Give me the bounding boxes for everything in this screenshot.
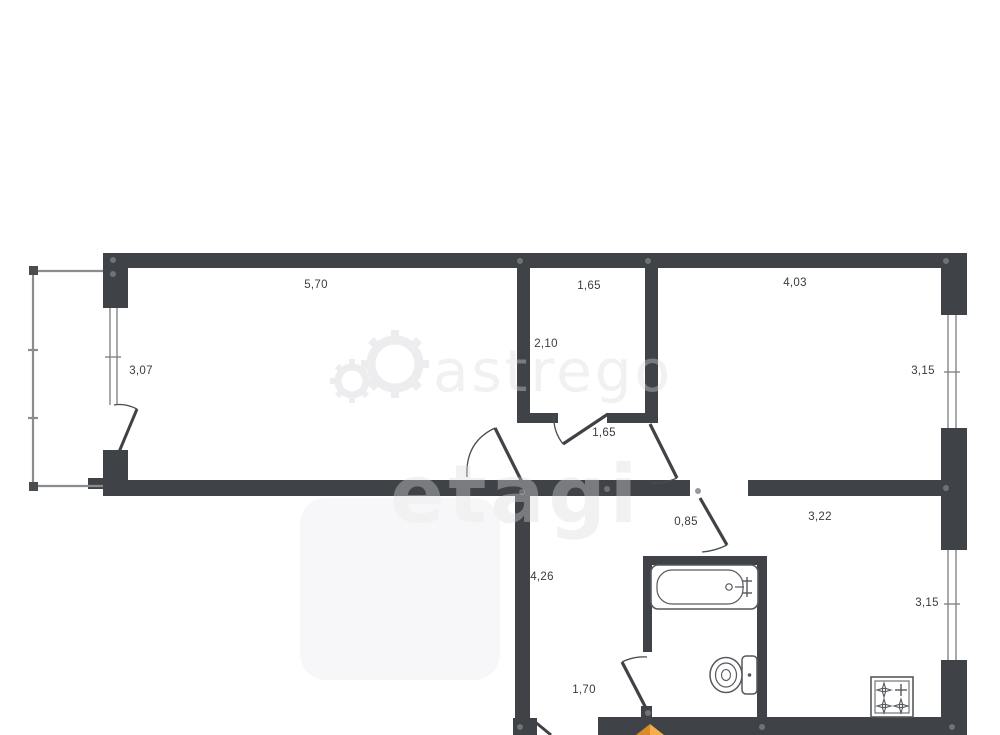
wall-junction-dots <box>110 257 955 730</box>
toilet-icon <box>710 656 757 694</box>
door-bathroom <box>622 657 648 712</box>
bathtub-icon <box>651 565 758 609</box>
dim-bedroom-width: 4,03 <box>783 277 807 289</box>
dim-kitchen-passage: 0,85 <box>674 516 698 528</box>
floor-plan: astrego etagi 5,70 3,07 1,65 2,10 4,03 3… <box>0 0 1000 735</box>
dim-living-depth: 3,07 <box>129 365 153 377</box>
dim-kitchen-width: 3,22 <box>808 511 832 523</box>
door-living-room <box>467 428 522 482</box>
compass-north-icon <box>636 724 664 735</box>
door-corridor-bottom <box>534 721 551 735</box>
dim-bedroom-depth: 3,15 <box>911 365 935 377</box>
door-kitchen-passage <box>700 498 727 552</box>
dim-storage-depth: 2,10 <box>534 338 558 350</box>
door-balcony <box>114 405 137 453</box>
dim-corridor-length: 4,26 <box>530 571 554 583</box>
dim-kitchen-depth: 3,15 <box>915 597 939 609</box>
stove-icon <box>871 677 913 717</box>
window-glazing <box>105 308 960 660</box>
door-bedroom <box>650 424 677 483</box>
astrego-gears-watermark <box>330 330 429 403</box>
balcony-outline <box>28 270 103 487</box>
dim-living-width: 5,70 <box>304 279 328 291</box>
dim-storage-width: 1,65 <box>577 280 601 292</box>
dim-corridor-width: 1,70 <box>572 684 596 696</box>
dim-hall-passage: 1,65 <box>592 427 616 439</box>
